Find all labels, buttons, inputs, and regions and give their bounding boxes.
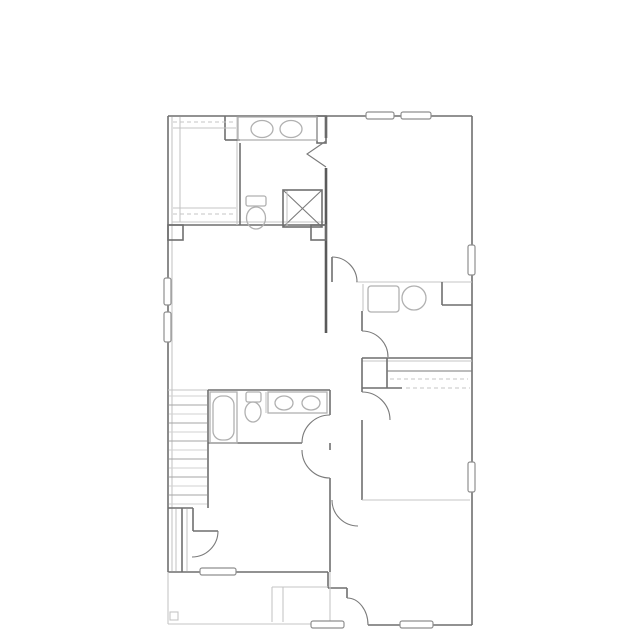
porch-post [170, 612, 178, 620]
window [468, 462, 475, 492]
window [400, 621, 433, 628]
sink-basin [280, 121, 302, 138]
sink-basin [275, 396, 293, 410]
door-swing-entry [347, 598, 368, 625]
window [164, 312, 171, 342]
window [164, 278, 171, 305]
sink-basin [302, 396, 320, 410]
toilet-bowl [245, 402, 261, 422]
door-swing-understairs [192, 531, 218, 557]
window [401, 112, 431, 119]
door-swing-bedroom2 [332, 257, 357, 282]
door-swing-bedroom3 [302, 450, 330, 478]
vanity-counter-hall [268, 392, 327, 413]
toilet-tank-hall [246, 392, 261, 402]
door-swing-laundry [362, 331, 388, 357]
window [366, 112, 394, 119]
washer [368, 286, 399, 312]
door-swing-hall-bath [302, 415, 330, 443]
floor-plan-drawing [0, 0, 639, 639]
vanity-counter-master [238, 117, 317, 140]
wall-pier [168, 225, 183, 240]
window [311, 621, 344, 628]
bifold-door-master-bath [307, 141, 326, 167]
utility-sink [402, 286, 426, 310]
window [200, 568, 236, 575]
toilet-tank-master [246, 196, 266, 206]
sink-basin [251, 121, 273, 138]
window [468, 245, 475, 275]
bathtub-basin [213, 396, 234, 440]
floor-plan-page [0, 0, 639, 639]
wall-jog [317, 116, 326, 143]
door-swing-bottom-room [332, 500, 358, 526]
door-swing-hall [362, 392, 390, 420]
